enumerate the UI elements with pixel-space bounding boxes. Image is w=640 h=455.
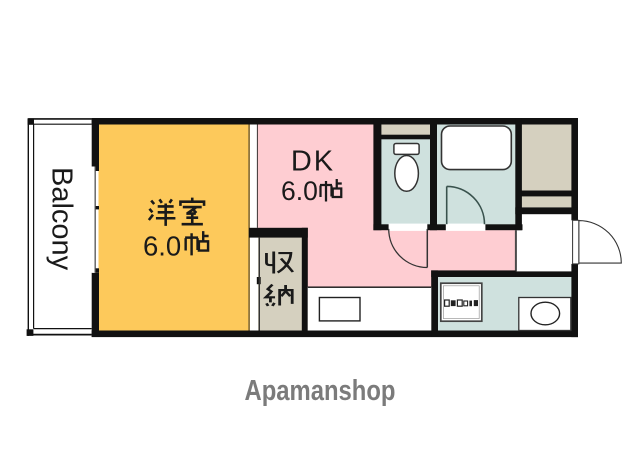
svg-text:Apamanshop: Apamanshop bbox=[245, 375, 396, 407]
svg-text:DK: DK bbox=[291, 145, 335, 177]
svg-text:6.0: 6.0 bbox=[143, 231, 181, 262]
svg-text:6.0: 6.0 bbox=[281, 176, 318, 206]
svg-text:Balcony: Balcony bbox=[46, 167, 78, 271]
